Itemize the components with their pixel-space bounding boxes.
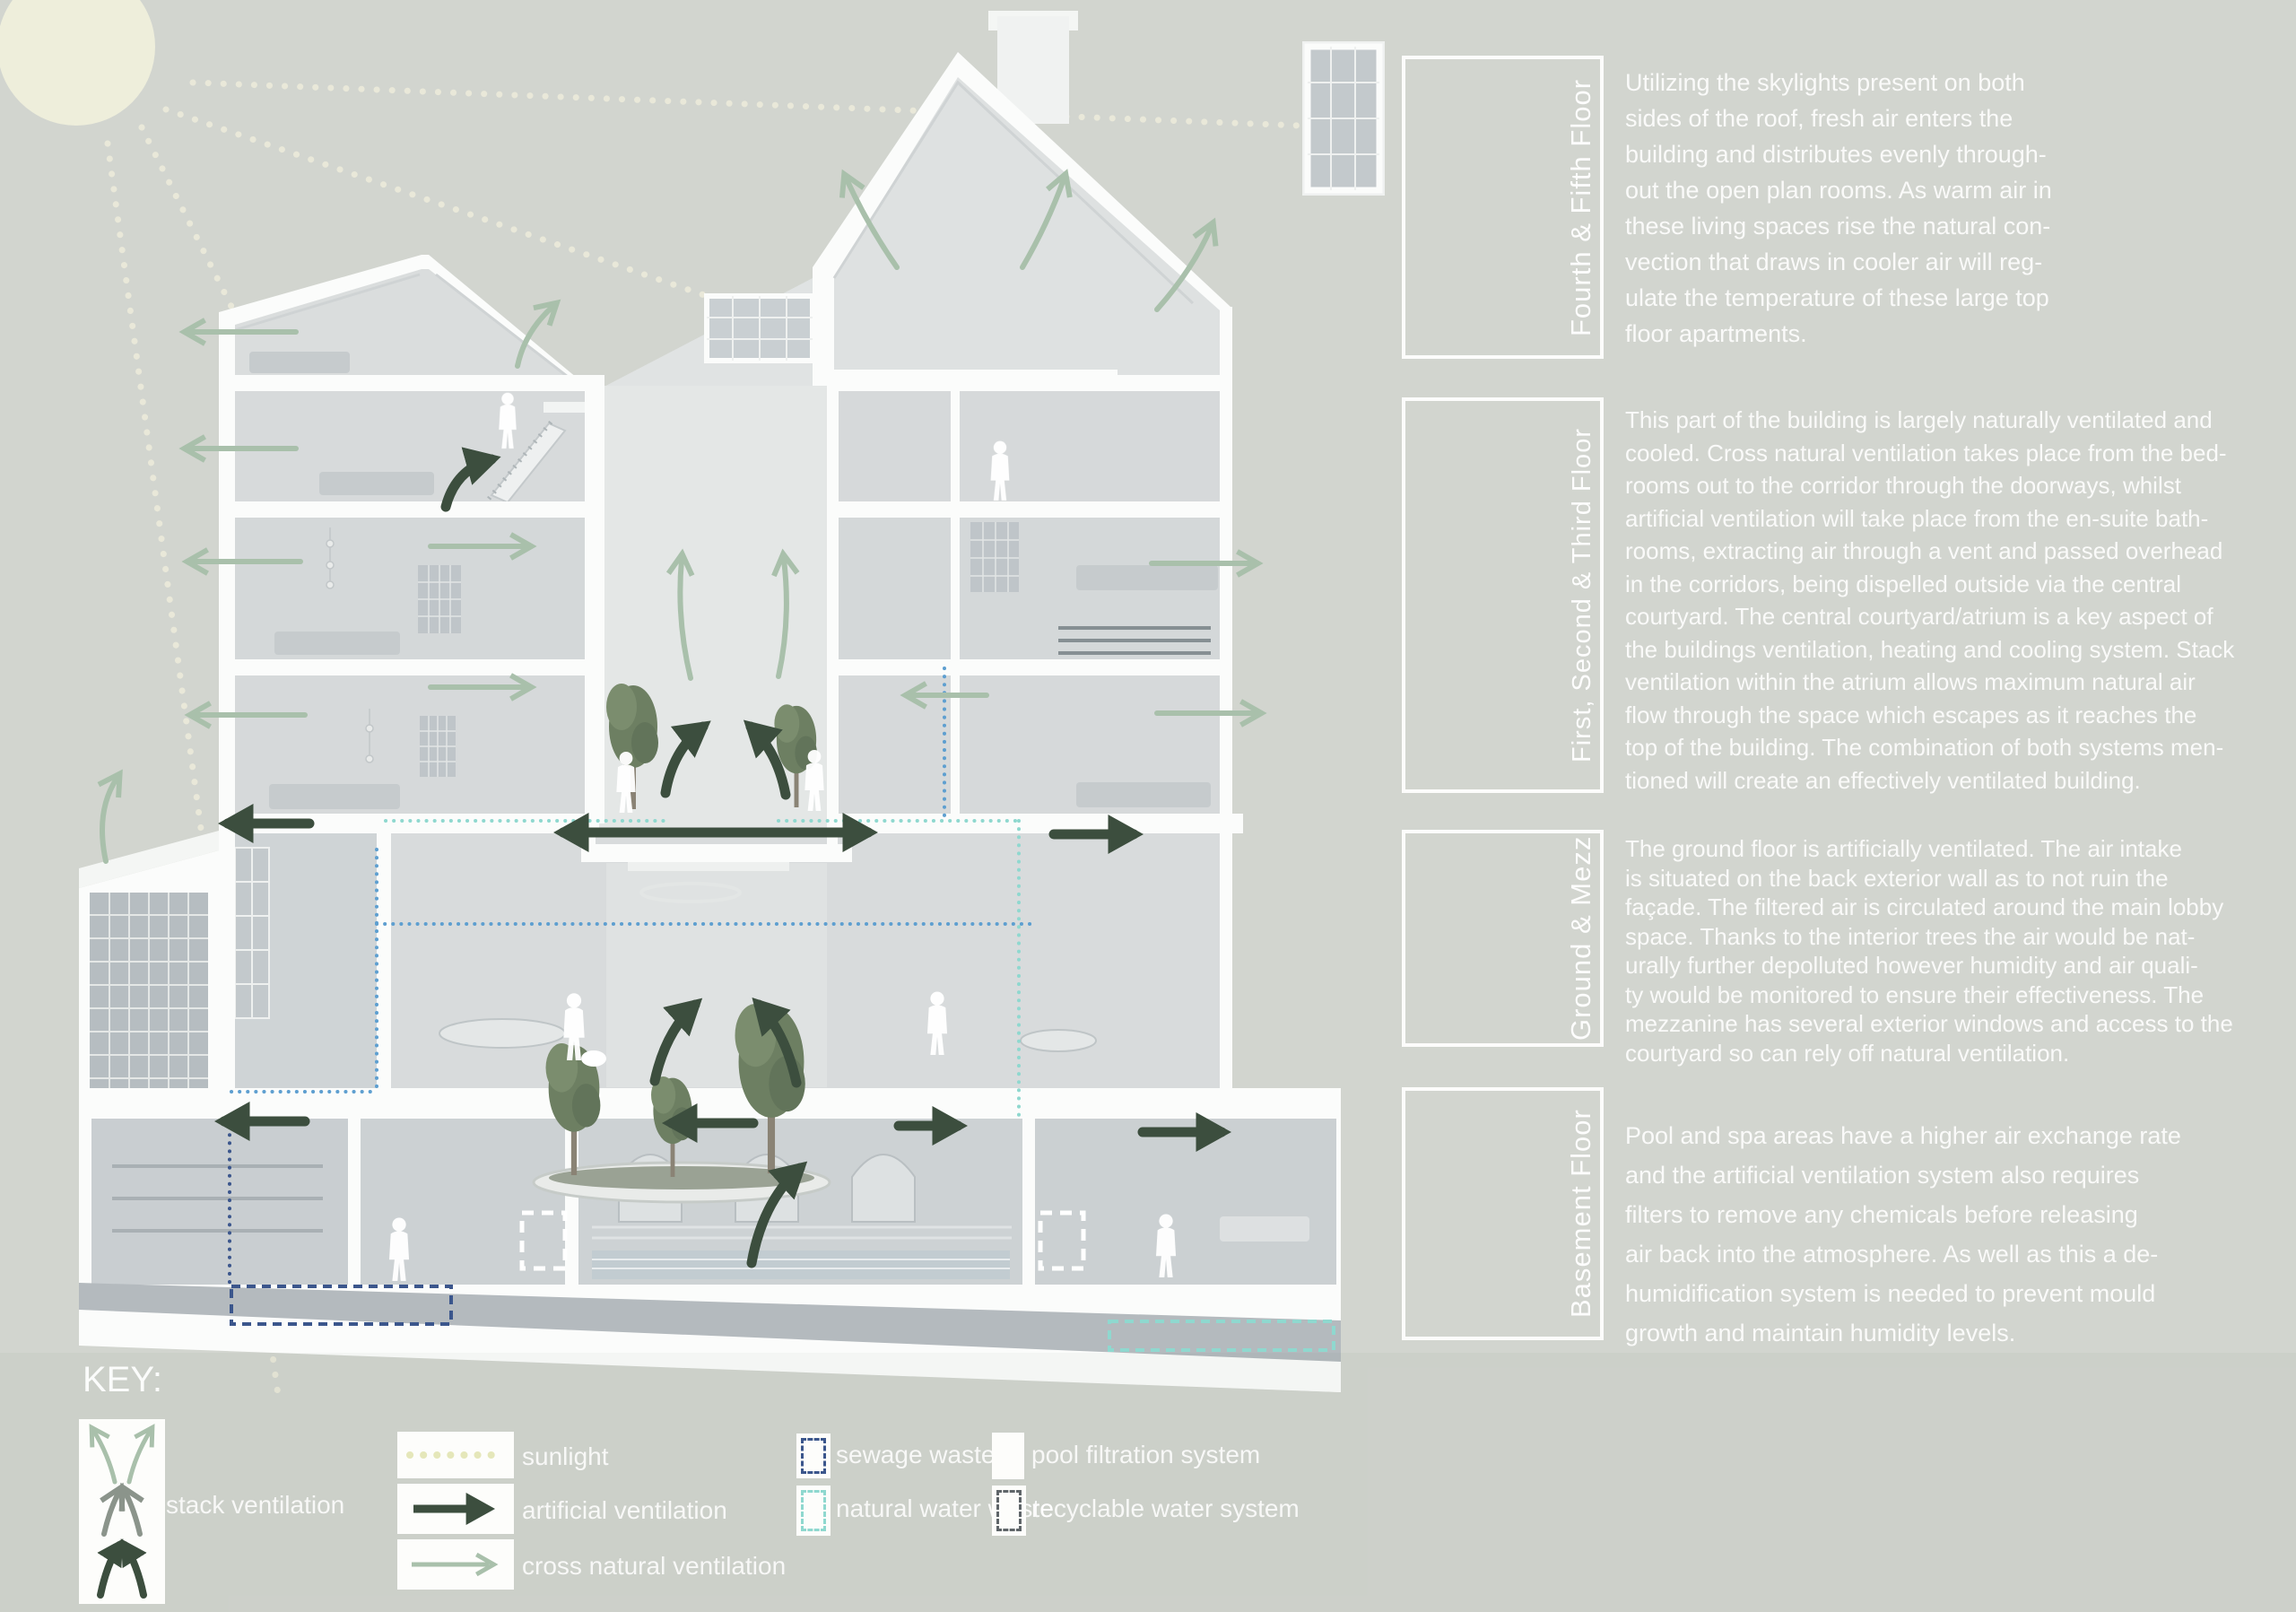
sewage-waste-swatch [796,1433,831,1478]
sun-icon [0,0,155,126]
key-band [0,1353,2296,1612]
annotation-first-second-third-floor: First, Second & Third Floor [1402,397,1604,793]
annotation-text-ground-mezz: The ground floor is artificially ventila… [1625,834,2296,1067]
natural-water-waste-swatch [796,1486,831,1536]
sewage-waste-icon [801,1438,826,1474]
stack-ventilation-swatch [79,1419,165,1604]
floor-label-ground-mezz: Ground & Mezz [1565,833,1597,1043]
floor-label-fourth-fifth: Fourth & Fifth Floor [1565,59,1597,355]
key-label-cross-natural-ventilation: cross natural ventilation [522,1552,786,1581]
luggage [581,1050,606,1067]
annotation-ground-mezz: Ground & Mezz [1402,830,1604,1047]
artificial-ventilation-swatch [397,1484,514,1534]
annotation-basement-floor: Basement Floor [1402,1087,1604,1340]
annotation-text-fourth-fifth: Utilizing the skylights present on both … [1625,65,2127,352]
roof-tower-window [1308,47,1379,190]
floor-label-first-second-third: First, Second & Third Floor [1568,401,1597,789]
key-label-pool-filtration: pool filtration system [1031,1441,1260,1469]
stack-ventilation-icon [79,1419,165,1604]
floor-label-basement: Basement Floor [1565,1091,1597,1337]
key-label-recyclable-water: recyclable water system [1031,1494,1300,1523]
sunlight-swatch [397,1432,514,1478]
annotation-text-first-second-third: This part of the building is largely nat… [1625,404,2296,797]
key-title: KEY: [83,1360,162,1400]
sunlight-icon [397,1432,514,1478]
closet-grid [970,522,1019,592]
key-label-sunlight: sunlight [522,1442,609,1471]
skylight [707,296,813,361]
natural-water-waste-icon [801,1490,826,1531]
key-label-stack-ventilation: stack ventilation [166,1491,344,1520]
ventilation-strategy-poster: Fourth & Fifth Floor Utilizing the skyli… [0,0,2296,1612]
artificial-ventilation-icon [397,1484,514,1534]
annotation-fourth-fifth-floor: Fourth & Fifth Floor [1402,56,1604,359]
pool-filtration-swatch [992,1433,1024,1479]
recyclable-water-swatch [992,1486,1026,1536]
cross-natural-ventilation-swatch [397,1539,514,1590]
annotation-text-basement: Pool and spa areas have a higher air exc… [1625,1116,2235,1353]
cross-natural-ventilation-icon [397,1539,514,1590]
key-label-sewage-waste: sewage waste [836,1441,995,1469]
key-label-artificial-ventilation: artificial ventilation [522,1496,727,1525]
recyclable-water-icon [996,1490,1022,1531]
